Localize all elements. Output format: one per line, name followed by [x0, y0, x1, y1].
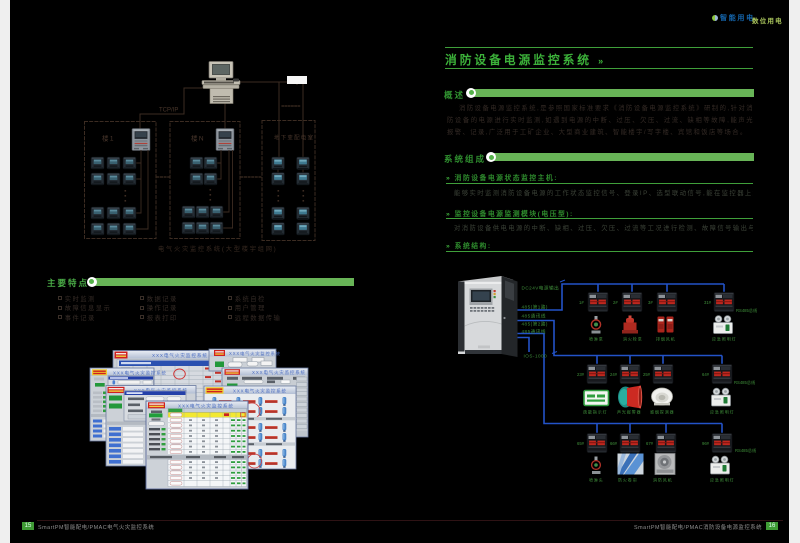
- svg-text:RS485总线: RS485总线: [734, 379, 756, 385]
- svg-text:楼1: 楼1: [102, 134, 115, 143]
- svg-text:2#: 2#: [613, 300, 618, 305]
- svg-text:DC24V电源输出: DC24V电源输出: [522, 285, 560, 292]
- svg-text:感烟探测器: 感烟探测器: [650, 409, 675, 415]
- svg-text:1#: 1#: [579, 300, 584, 305]
- svg-text:应急照明灯: 应急照明灯: [710, 477, 735, 483]
- svg-text:485通讯线: 485通讯线: [522, 328, 546, 335]
- svg-text:疏散指示灯: 疏散指示灯: [583, 409, 608, 415]
- svg-text:64#: 64#: [702, 372, 710, 377]
- svg-text:TCP/IP: TCP/IP: [159, 108, 178, 114]
- svg-text:IOS-1000: IOS-1000: [524, 354, 548, 359]
- svg-text:3#: 3#: [648, 300, 653, 305]
- svg-text:XXX电气火灾监控系统: XXX电气火灾监控系统: [152, 352, 208, 359]
- svg-text:31#: 31#: [704, 300, 712, 305]
- svg-text:485(第2路): 485(第2路): [522, 321, 548, 328]
- svg-text:防火卷帘: 防火卷帘: [618, 477, 638, 483]
- svg-text:67#: 67#: [646, 441, 654, 446]
- svg-text:485通讯线: 485通讯线: [522, 313, 546, 320]
- svg-text:23#: 23#: [577, 372, 585, 377]
- svg-text:XXX电气火灾监控系统: XXX电气火灾监控系统: [233, 387, 287, 394]
- svg-text:XXX电气火灾监控系统: XXX电气火灾监控系统: [178, 402, 234, 409]
- svg-text:XXX电气火灾监控系统: XXX电气火灾监控系统: [252, 369, 306, 376]
- svg-text:25#: 25#: [643, 372, 651, 377]
- svg-text:应急照明灯: 应急照明灯: [710, 409, 735, 415]
- svg-text:声光报警器: 声光报警器: [617, 409, 642, 415]
- svg-text:消防风机: 消防风机: [653, 477, 673, 483]
- svg-text:应急照明灯: 应急照明灯: [712, 336, 737, 342]
- svg-text:XXX电气火灾监控系统: XXX电气火灾监控系统: [229, 350, 281, 357]
- svg-text:66#: 66#: [610, 441, 618, 446]
- svg-text:RS485总线: RS485总线: [735, 447, 757, 453]
- svg-text:喷淋泵: 喷淋泵: [589, 336, 604, 342]
- svg-text:排烟风机: 排烟风机: [656, 336, 676, 342]
- svg-text:24#: 24#: [610, 372, 618, 377]
- svg-text:地下变配电室: 地下变配电室: [274, 134, 314, 142]
- svg-text:楼N: 楼N: [191, 134, 205, 143]
- svg-text:96#: 96#: [702, 441, 710, 446]
- svg-text:485(第1路): 485(第1路): [522, 304, 548, 311]
- svg-text:喷淋头: 喷淋头: [589, 477, 604, 483]
- svg-text:RS485总线: RS485总线: [736, 307, 758, 313]
- svg-text:65#: 65#: [577, 441, 585, 446]
- svg-text:XXX电气火灾监控系统: XXX电气火灾监控系统: [113, 369, 167, 376]
- svg-text:消火栓泵: 消火栓泵: [623, 336, 643, 342]
